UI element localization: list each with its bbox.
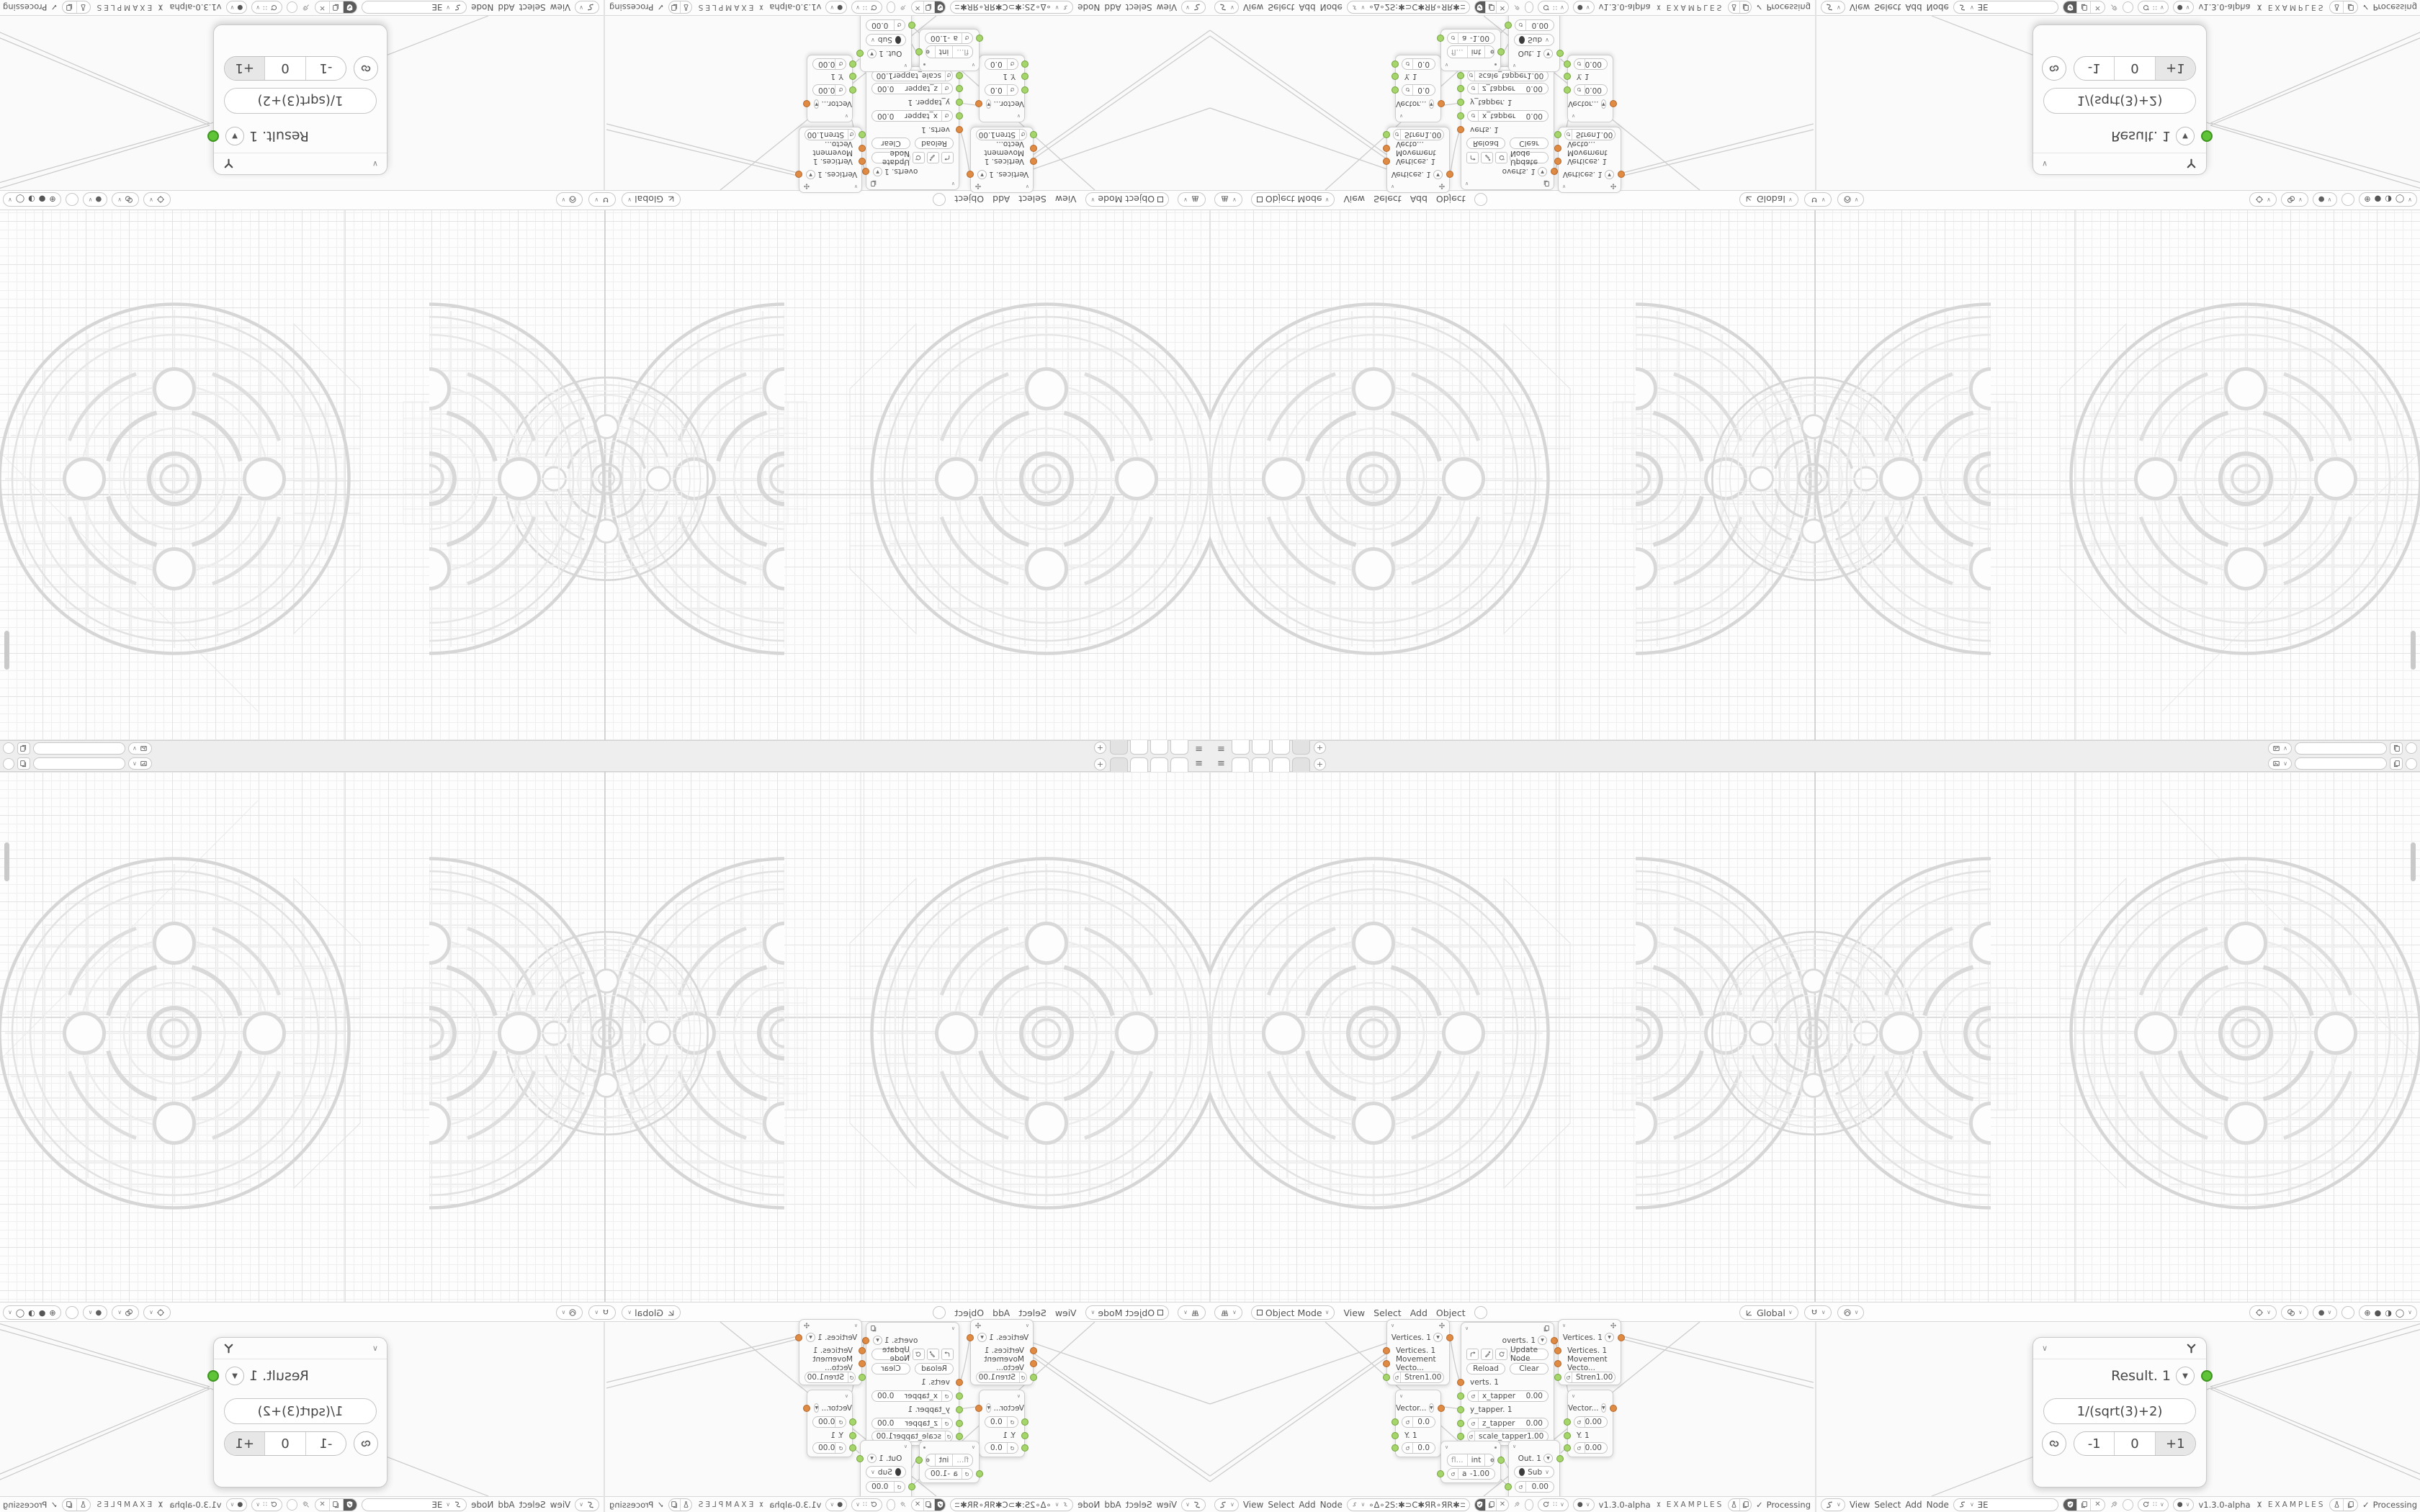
menu-select[interactable]: Select xyxy=(519,1500,546,1510)
tree-selector[interactable]: ∨ ƎE xyxy=(1953,1498,2058,1511)
menu-add[interactable]: Add xyxy=(1299,3,1315,13)
output-menu-button[interactable]: ▼ xyxy=(1433,1333,1443,1342)
socket-in-y[interactable] xyxy=(1391,1432,1399,1439)
update-options-dropdown[interactable]: ∷ ∨ xyxy=(251,1,282,14)
x-field[interactable]: 0.00 xyxy=(1574,84,1608,96)
clear-button[interactable]: Clear xyxy=(1510,1363,1549,1374)
menu-object[interactable]: Object xyxy=(954,1308,984,1318)
output-menu-button[interactable]: ▼ xyxy=(977,1333,987,1342)
expression-field[interactable]: 1/(sqrt(3)+2) xyxy=(224,88,377,114)
output-menu-button[interactable]: ▼ xyxy=(1429,99,1434,109)
menu-add[interactable]: Add xyxy=(1104,1500,1121,1510)
socket-in-verts[interactable] xyxy=(956,1379,963,1386)
socket-in-scaletapper[interactable] xyxy=(956,72,963,79)
socket-in-vertices[interactable] xyxy=(1383,1347,1390,1354)
goto-source-button[interactable] xyxy=(1466,152,1479,163)
increment-button[interactable]: +1 xyxy=(2156,57,2195,80)
menu-add[interactable]: Add xyxy=(1905,3,1922,13)
menu-select[interactable]: Select xyxy=(1268,3,1294,13)
socket-in-movement[interactable] xyxy=(1030,1360,1037,1367)
output-menu-button[interactable]: ▼ xyxy=(814,1403,819,1413)
options-circle-button[interactable] xyxy=(933,1306,946,1319)
socket-in-ytapper[interactable] xyxy=(1457,99,1464,106)
collapse-chevron-icon[interactable]: ∨ xyxy=(1445,63,1448,68)
expression-field[interactable]: 1/(sqrt(3)+2) xyxy=(2043,1398,2196,1424)
collapse-chevron-icon[interactable]: ∨ xyxy=(1465,181,1469,186)
node-editor-a[interactable]: ∨ Vertices. 1 ▼ Vertices. 1 Movement Vec… xyxy=(605,1322,1210,1512)
node-move-vertices[interactable]: ∨ Vertices. 1 ▼ Vertices. 1 Movement Vec… xyxy=(799,1319,862,1385)
strength-field[interactable]: Stren 1.00 xyxy=(1393,1372,1444,1383)
overlays-dropdown[interactable]: ∨ xyxy=(2281,1305,2308,1320)
experimental-button[interactable] xyxy=(680,1,691,14)
refresh-button[interactable] xyxy=(1495,152,1507,163)
examples-menu[interactable]: EXAMPLES xyxy=(696,1500,754,1509)
output-menu-button[interactable]: ▼ xyxy=(225,127,244,145)
overlays-dropdown[interactable]: ∨ xyxy=(2281,192,2308,207)
node-vector-in[interactable]: ∨ Vector... ▼ 0.0 Y. 1 xyxy=(1395,55,1441,122)
socket-in-y[interactable] xyxy=(849,73,856,80)
shading-mode-switch[interactable]: ⊕ ● ◑ ◯ ∨ xyxy=(2359,1305,2417,1320)
options-circle-button[interactable] xyxy=(933,193,946,206)
settings-segment[interactable] xyxy=(926,45,935,58)
node-move-vertices[interactable]: ∨ Vertices. 1 ▼ Vertices. 1 Movement Vec… xyxy=(1558,127,1621,193)
output-menu-button[interactable]: ▼ xyxy=(2176,127,2195,145)
experimental-button[interactable] xyxy=(2330,1,2344,14)
copy-scene-button[interactable] xyxy=(17,757,30,770)
scene-icon-dropdown[interactable]: ∨ xyxy=(128,757,152,770)
unlink-tree-button[interactable]: ✕ xyxy=(315,1,329,14)
menu-object[interactable]: Object xyxy=(1436,194,1466,205)
socket-in-strength[interactable] xyxy=(859,131,866,138)
proportional-edit-dropdown[interactable]: ∨ xyxy=(556,1305,583,1320)
socket-in-x[interactable] xyxy=(908,1483,915,1490)
socket-out-vertices[interactable] xyxy=(1618,1334,1625,1341)
socket-in-x[interactable] xyxy=(1021,86,1028,94)
increment-button[interactable]: +1 xyxy=(225,1432,264,1455)
collapse-chevron-icon[interactable]: ∨ xyxy=(1562,184,1566,189)
menu-add[interactable]: Add xyxy=(498,3,514,13)
collapse-chevron-icon[interactable]: ∨ xyxy=(854,184,858,189)
viewport-3d[interactable] xyxy=(0,210,1210,740)
add-workspace-button[interactable]: + xyxy=(1094,742,1106,754)
socket-in-ztapper[interactable] xyxy=(1457,85,1464,92)
collapse-chevron-icon[interactable]: ∨ xyxy=(845,1394,848,1399)
decrement-button[interactable]: -1 xyxy=(2074,57,2115,80)
tree-selector[interactable]: ∨ ƎE xyxy=(1953,1,2058,14)
xray-dropdown[interactable]: ● ∨ xyxy=(83,1305,108,1320)
shading-material-icon[interactable]: ◑ xyxy=(28,195,35,204)
orientation-dropdown[interactable]: Global ∨ xyxy=(1739,1305,1798,1320)
output-menu-button[interactable]: ▼ xyxy=(986,1403,991,1413)
snap-dropdown[interactable]: ∨ xyxy=(1804,192,1832,207)
shading-circle-button[interactable] xyxy=(2341,1306,2354,1319)
x-tapper-field[interactable]: x_tapper 0.00 xyxy=(1467,1390,1549,1402)
blank-circle-button[interactable] xyxy=(2123,1499,2133,1511)
display-options-dropdown[interactable]: ● ∨ xyxy=(1573,1,1595,14)
reload-button[interactable]: Reload xyxy=(1466,1363,1505,1374)
node-script[interactable]: ∨ overts. 1 ▼ Update Node Reload xyxy=(1461,66,1554,190)
tree-selector[interactable]: ∨ ∘Δ∘2S:✱⊃C✱ЯR∘ЯR✱⊃C✱:2S∘Δ∘ xyxy=(951,1498,1074,1511)
socket-out-vector[interactable] xyxy=(803,1405,810,1412)
scene-name-field[interactable] xyxy=(33,742,125,755)
refresh-button[interactable] xyxy=(913,152,925,163)
node-convert[interactable]: ∨ fl... int ▼ a xyxy=(1440,1441,1501,1483)
x-field[interactable]: 0.00 xyxy=(812,84,846,96)
hamburger-icon[interactable]: ≡ xyxy=(1217,759,1225,769)
goto-source-button[interactable] xyxy=(941,152,954,163)
socket-out-vector[interactable] xyxy=(1610,1405,1617,1412)
node-editor-b[interactable]: ∨ Result. 1 ▼ 1/(sqrt(3)+2) xyxy=(0,1322,605,1512)
pin-icon[interactable] xyxy=(302,1500,310,1509)
clear-button[interactable]: Clear xyxy=(1510,138,1549,149)
x-tapper-field[interactable]: x_tapper 0.00 xyxy=(871,1390,953,1402)
shading-rendered-icon[interactable]: ◯ xyxy=(16,1308,24,1318)
socket-in-y[interactable] xyxy=(849,1432,856,1439)
edit-source-button[interactable] xyxy=(1481,152,1493,163)
menu-view[interactable]: View xyxy=(1243,1500,1263,1510)
link-button[interactable] xyxy=(354,1431,378,1456)
fake-user-shield-button[interactable] xyxy=(2063,1,2077,14)
collapse-chevron-icon[interactable]: ∨ xyxy=(904,63,907,68)
blank-circle-button[interactable] xyxy=(887,2,896,14)
socket-in-vertices[interactable] xyxy=(1030,158,1037,165)
node-move-vertices[interactable]: ∨ Vertices. 1 ▼ Vertices. 1 Movement Vec… xyxy=(799,127,862,193)
console-button[interactable] xyxy=(2344,1498,2357,1511)
node-canvas-b[interactable]: ∨ Result. 1 ▼ 1/(sqrt(3)+2) xyxy=(0,16,604,190)
link-button[interactable] xyxy=(354,56,378,81)
node-canvas-a[interactable]: ∨ Vertices. 1 ▼ Vertices. 1 Movement Vec… xyxy=(1210,1322,1815,1496)
examples-menu[interactable]: EXAMPLES xyxy=(95,4,153,12)
node-script[interactable]: ∨ overts. 1 ▼ Update Node Reload xyxy=(866,66,959,190)
editor-type-dropdown[interactable]: ∨ xyxy=(1214,1305,1242,1320)
node-canvas-a[interactable]: ∨ Vertices. 1 ▼ Vertices. 1 Movement Vec… xyxy=(605,1322,1210,1496)
shading-material-icon[interactable]: ◑ xyxy=(2385,195,2392,204)
gizmo-dropdown[interactable]: ∨ xyxy=(2249,1305,2277,1320)
workspace-tab[interactable] xyxy=(1130,740,1148,755)
x-field[interactable]: 0.00 xyxy=(866,19,905,31)
option-float[interactable]: fl... xyxy=(1448,45,1468,58)
workspace-tab[interactable] xyxy=(1252,740,1270,755)
socket-in-x[interactable] xyxy=(1021,1418,1028,1426)
mode-dropdown[interactable]: Object Mode ∨ xyxy=(1085,192,1170,207)
x-field[interactable]: 0.0 xyxy=(1402,1416,1435,1428)
settings-segment[interactable] xyxy=(1485,45,1494,58)
socket-out-vertices[interactable] xyxy=(795,171,802,179)
socket-in-y[interactable] xyxy=(1021,1432,1028,1439)
socket-out-number[interactable] xyxy=(207,1370,219,1382)
x-tapper-field[interactable]: x_tapper 0.00 xyxy=(1467,110,1549,122)
a-field[interactable]: a -1.00 xyxy=(925,1468,973,1480)
menu-view[interactable]: View xyxy=(1157,1500,1177,1510)
socket-out-vertices[interactable] xyxy=(795,1334,802,1341)
node-move-vertices[interactable]: ∨ Vertices. 1 ▼ Vertices. 1 Movement Vec… xyxy=(1386,1319,1450,1385)
socket-in-strength[interactable] xyxy=(1030,131,1037,138)
operation-dropdown[interactable]: Sub ∨ xyxy=(866,34,906,46)
menu-node[interactable]: Node xyxy=(1927,3,1949,13)
socket-in-xtapper[interactable] xyxy=(956,112,963,120)
socket-in-a[interactable] xyxy=(976,1470,983,1477)
socket-in-strength[interactable] xyxy=(859,1374,866,1381)
xray-dropdown[interactable]: ● ∨ xyxy=(2313,1305,2338,1320)
node-vector-in[interactable]: ∨ Vector... ▼ 0.00 Y. 1 xyxy=(1567,55,1613,122)
output-menu-button[interactable]: ▼ xyxy=(867,49,877,58)
socket-in-x[interactable] xyxy=(849,1418,856,1426)
socket-in-xtapper[interactable] xyxy=(956,1392,963,1400)
z-tapper-field[interactable]: z_tapper 0.00 xyxy=(1467,83,1549,94)
socket-out-vertices[interactable] xyxy=(967,171,974,179)
orientation-dropdown[interactable]: Global ∨ xyxy=(622,1305,681,1320)
update-options-dropdown[interactable]: ∷ ∨ xyxy=(251,1498,282,1511)
blank-circle-button[interactable] xyxy=(887,1499,896,1511)
experimental-button[interactable] xyxy=(76,1498,90,1511)
shading-solid-icon[interactable]: ● xyxy=(39,1308,46,1318)
socket-in-scaletapper[interactable] xyxy=(956,1433,963,1440)
editor-type-dropdown[interactable]: ∨ xyxy=(1178,192,1206,207)
blank-circle-button[interactable] xyxy=(287,1499,297,1511)
socket-in-z[interactable] xyxy=(1021,1444,1028,1452)
new-tree-button[interactable] xyxy=(923,1,934,14)
node-script[interactable]: ∨ overts. 1 ▼ Update Node Reload xyxy=(866,1322,959,1446)
socket-in-scaletapper[interactable] xyxy=(1457,72,1464,79)
menu-view[interactable]: View xyxy=(1343,194,1365,205)
collapse-chevron-icon[interactable]: ∨ xyxy=(1572,1394,1575,1399)
socket-in-ztapper[interactable] xyxy=(956,85,963,92)
strength-field[interactable]: Stren 1.00 xyxy=(805,129,856,140)
socket-in-xtapper[interactable] xyxy=(1457,112,1464,120)
output-menu-button[interactable]: ▼ xyxy=(1605,1333,1614,1342)
snap-dropdown[interactable]: ∨ xyxy=(1804,1305,1832,1320)
processing-toggle[interactable]: ✓ Processing xyxy=(609,3,664,13)
display-options-dropdown[interactable]: ● ∨ xyxy=(1573,1498,1595,1511)
node-vector-in[interactable]: ∨ Vector... ▼ 0.0 Y. 1 xyxy=(1395,1390,1441,1457)
menu-select[interactable]: Select xyxy=(519,3,546,13)
workspace-tab-active[interactable] xyxy=(1110,740,1128,755)
workspace-tab[interactable] xyxy=(1150,757,1168,772)
shading-rendered-icon[interactable]: ◯ xyxy=(2396,1308,2404,1318)
socket-out-number[interactable] xyxy=(1497,48,1505,55)
socket-out-vertices[interactable] xyxy=(1446,1334,1453,1341)
reload-button[interactable]: Reload xyxy=(915,1363,954,1374)
option-int[interactable]: int xyxy=(935,45,953,58)
decrement-button[interactable]: -1 xyxy=(2074,1432,2115,1455)
menu-add[interactable]: Add xyxy=(1410,1308,1428,1318)
output-menu-button[interactable]: ▼ xyxy=(1433,170,1443,179)
collapse-chevron-icon[interactable]: ∨ xyxy=(372,1344,378,1352)
unlink-tree-button[interactable]: ✕ xyxy=(2091,1,2105,14)
gizmo-dropdown[interactable]: ∨ xyxy=(2249,192,2277,207)
node-convert[interactable]: ∨ fl... int ▼ a xyxy=(919,1441,980,1483)
update-options-dropdown[interactable]: ∷ ∨ xyxy=(1538,1498,1569,1511)
node-result-number[interactable]: ∨ Result. 1 ▼ 1/(sqrt(3)+2) xyxy=(213,24,387,175)
node-editor-a[interactable]: ∨ Vertices. 1 ▼ Vertices. 1 Movement Vec… xyxy=(1210,1322,1815,1512)
workspace-tab-active[interactable] xyxy=(1292,757,1310,772)
reload-button[interactable]: Reload xyxy=(915,138,954,149)
increment-button[interactable]: +1 xyxy=(225,57,264,80)
examples-menu[interactable]: EXAMPLES xyxy=(1667,1500,1724,1509)
update-options-dropdown[interactable]: ∷ ∨ xyxy=(2138,1,2169,14)
console-button[interactable] xyxy=(2344,1,2357,14)
node-result-number[interactable]: ∨ Result. 1 ▼ 1/(sqrt(3)+2) xyxy=(2033,1337,2207,1488)
socket-in-x[interactable] xyxy=(1391,1418,1399,1426)
socket-out-result[interactable] xyxy=(856,1455,864,1462)
node-editor-a[interactable]: ∨ Vertices. 1 ▼ Vertices. 1 Movement Vec… xyxy=(605,0,1210,190)
new-tree-button[interactable] xyxy=(329,1,343,14)
socket-out-vector[interactable] xyxy=(1438,1405,1445,1412)
collapse-chevron-icon[interactable]: ∨ xyxy=(1026,184,1029,189)
socket-out-vector[interactable] xyxy=(975,101,982,108)
strength-field[interactable]: Stren 1.00 xyxy=(805,1372,856,1383)
display-options-dropdown[interactable]: ● ∨ xyxy=(2173,1498,2195,1511)
hamburger-icon[interactable]: ≡ xyxy=(1195,759,1203,769)
node-canvas-b[interactable]: ∨ Result. 1 ▼ 1/(sqrt(3)+2) xyxy=(0,1322,604,1496)
examples-menu[interactable]: EXAMPLES xyxy=(696,4,754,12)
menu-select[interactable]: Select xyxy=(1126,1500,1152,1510)
socket-out-number[interactable] xyxy=(1497,1457,1505,1464)
option-float[interactable]: fl... xyxy=(952,1454,972,1467)
snap-dropdown[interactable]: ∨ xyxy=(588,1305,616,1320)
option-float[interactable]: fl... xyxy=(952,45,972,58)
socket-in-z[interactable] xyxy=(1564,60,1571,68)
socket-in-ytapper[interactable] xyxy=(956,1406,963,1413)
a-field[interactable]: a -1.00 xyxy=(1447,32,1495,44)
console-button[interactable] xyxy=(1740,1498,1751,1511)
workspace-tab[interactable] xyxy=(1130,757,1148,772)
fake-user-shield-button[interactable] xyxy=(343,1498,357,1511)
socket-out-result[interactable] xyxy=(1556,1455,1564,1462)
edit-source-button[interactable] xyxy=(1481,1349,1493,1360)
type-switch[interactable]: fl... int ▼ xyxy=(926,45,973,58)
decrement-button[interactable]: -1 xyxy=(305,57,346,80)
z-field[interactable]: 0.0 xyxy=(985,58,1018,70)
shading-mode-switch[interactable]: ⊕ ● ◑ ◯ ∨ xyxy=(3,1305,61,1320)
update-node-button[interactable]: Update Node xyxy=(1510,1349,1549,1360)
option-int[interactable]: int xyxy=(1468,45,1486,58)
menu-add[interactable]: Add xyxy=(1299,1500,1315,1510)
workspace-tab[interactable] xyxy=(1232,757,1250,772)
output-menu-button[interactable]: ▼ xyxy=(225,1367,244,1385)
update-node-button[interactable]: Update Node xyxy=(1510,152,1549,163)
close-scene-button[interactable] xyxy=(2406,743,2417,755)
xray-dropdown[interactable]: ● ∨ xyxy=(83,192,108,207)
node-canvas-b[interactable]: ∨ Result. 1 ▼ 1/(sqrt(3)+2) xyxy=(1816,1322,2420,1496)
socket-in-z[interactable] xyxy=(1564,1444,1571,1452)
z-tapper-field[interactable]: z_tapper 0.00 xyxy=(1467,1418,1549,1429)
output-menu-button[interactable]: ▼ xyxy=(1538,167,1547,176)
type-switch[interactable]: fl... int ▼ xyxy=(926,1454,973,1467)
strength-field[interactable]: Stren 1.00 xyxy=(976,129,1027,140)
processing-toggle[interactable]: ✓ Processing xyxy=(1756,3,1811,13)
shading-circle-button[interactable] xyxy=(2341,193,2354,206)
console-button[interactable] xyxy=(669,1498,680,1511)
socket-in-vertices[interactable] xyxy=(859,158,866,165)
collapse-chevron-icon[interactable]: ∨ xyxy=(1399,1394,1403,1399)
editor-type-dropdown[interactable]: ∨ xyxy=(1821,1,1845,14)
socket-in-x[interactable] xyxy=(1564,86,1571,94)
mode-dropdown[interactable]: Object Mode ∨ xyxy=(1251,192,1335,207)
socket-in-z[interactable] xyxy=(1021,60,1028,68)
new-tree-button[interactable] xyxy=(329,1498,343,1511)
node-result-number[interactable]: ∨ Result. 1 ▼ 1/(sqrt(3)+2) xyxy=(2033,24,2207,175)
orientation-dropdown[interactable]: Global ∨ xyxy=(1739,192,1798,207)
x-field[interactable]: 0.0 xyxy=(985,84,1018,96)
output-menu-button[interactable]: ▼ xyxy=(1601,99,1606,109)
socket-out-number[interactable] xyxy=(2201,1370,2213,1382)
display-options-dropdown[interactable]: ● ∨ xyxy=(226,1498,248,1511)
socket-in-vertices[interactable] xyxy=(1383,158,1390,165)
node-move-vertices[interactable]: ∨ Vertices. 1 ▼ Vertices. 1 Movement Vec… xyxy=(970,127,1034,193)
menu-node[interactable]: Node xyxy=(1320,1500,1343,1510)
scene-name-field[interactable] xyxy=(33,757,125,770)
socket-out-result[interactable] xyxy=(856,50,864,58)
socket-in-ytapper[interactable] xyxy=(1457,1406,1464,1413)
collapse-chevron-icon[interactable]: ∨ xyxy=(1562,1323,1566,1328)
z-tapper-field[interactable]: z_tapper 0.00 xyxy=(871,83,953,94)
node-canvas-b[interactable]: ∨ Result. 1 ▼ 1/(sqrt(3)+2) xyxy=(1816,16,2420,190)
blank-circle-button[interactable] xyxy=(1525,1499,1534,1511)
type-switch[interactable]: fl... int ▼ xyxy=(1447,1454,1494,1467)
zero-button[interactable]: 0 xyxy=(2115,1432,2155,1455)
node-move-vertices[interactable]: ∨ Vertices. 1 ▼ Vertices. 1 Movement Vec… xyxy=(1558,1319,1621,1385)
new-tree-button[interactable] xyxy=(1486,1498,1497,1511)
socket-in-y[interactable] xyxy=(1564,1432,1571,1439)
workspace-tab-active[interactable] xyxy=(1292,740,1310,755)
collapse-chevron-icon[interactable]: ∨ xyxy=(1017,1394,1021,1399)
scrollbar-nub[interactable] xyxy=(4,631,9,670)
shading-wireframe-icon[interactable]: ⊕ xyxy=(49,195,55,204)
shading-mode-switch[interactable]: ⊕ ● ◑ ◯ ∨ xyxy=(2359,192,2417,207)
collapse-chevron-icon[interactable]: ∨ xyxy=(1026,1323,1029,1328)
new-tree-button[interactable] xyxy=(923,1498,934,1511)
menu-object[interactable]: Object xyxy=(954,194,984,205)
collapse-chevron-icon[interactable]: ∨ xyxy=(951,1326,955,1331)
fake-user-shield-button[interactable] xyxy=(343,1,357,14)
node-vector-in[interactable]: ∨ Vector... ▼ 0.00 Y. 1 xyxy=(807,1390,853,1457)
output-menu-button[interactable]: ▼ xyxy=(873,1336,882,1345)
viewport-3d[interactable] xyxy=(0,772,1210,1302)
socket-in-x[interactable] xyxy=(1505,22,1512,29)
workspace-tab-active[interactable] xyxy=(1110,757,1128,772)
gizmo-dropdown[interactable]: ∨ xyxy=(143,1305,171,1320)
menu-object[interactable]: Object xyxy=(1436,1308,1466,1318)
zero-button[interactable]: 0 xyxy=(264,57,305,80)
shading-wireframe-icon[interactable]: ⊕ xyxy=(2364,1308,2370,1318)
settings-segment[interactable] xyxy=(926,1454,935,1467)
node-convert[interactable]: ∨ fl... int ▼ a xyxy=(1440,29,1501,71)
collapse-chevron-icon[interactable]: ∨ xyxy=(1445,1445,1448,1450)
socket-in-x[interactable] xyxy=(1391,86,1399,94)
unlink-tree-button[interactable]: ✕ xyxy=(912,1,923,14)
z-field[interactable]: 0.00 xyxy=(812,58,846,70)
strength-field[interactable]: Stren 1.00 xyxy=(976,1372,1027,1383)
blank-circle-button[interactable] xyxy=(2123,2,2133,14)
output-menu-button[interactable]: ▼ xyxy=(1543,49,1553,58)
pin-icon[interactable] xyxy=(2110,3,2118,12)
gizmo-dropdown[interactable]: ∨ xyxy=(143,192,171,207)
socket-in-z[interactable] xyxy=(1391,60,1399,68)
fake-user-shield-button[interactable] xyxy=(1475,1,1486,14)
unlink-tree-button[interactable]: ✕ xyxy=(1497,1498,1507,1511)
link-button[interactable] xyxy=(2042,1431,2066,1456)
zero-button[interactable]: 0 xyxy=(264,1432,305,1455)
display-options-dropdown[interactable]: ● ∨ xyxy=(825,1498,847,1511)
z-field[interactable]: 0.00 xyxy=(1574,1442,1608,1454)
socket-in-z[interactable] xyxy=(1391,1444,1399,1452)
processing-toggle[interactable]: ✓ Processing xyxy=(1756,1500,1811,1510)
collapse-chevron-icon[interactable]: ∨ xyxy=(2042,1344,2048,1352)
fake-user-shield-button[interactable] xyxy=(934,1,945,14)
socket-in-z[interactable] xyxy=(849,60,856,68)
socket-out-vector[interactable] xyxy=(975,1405,982,1412)
